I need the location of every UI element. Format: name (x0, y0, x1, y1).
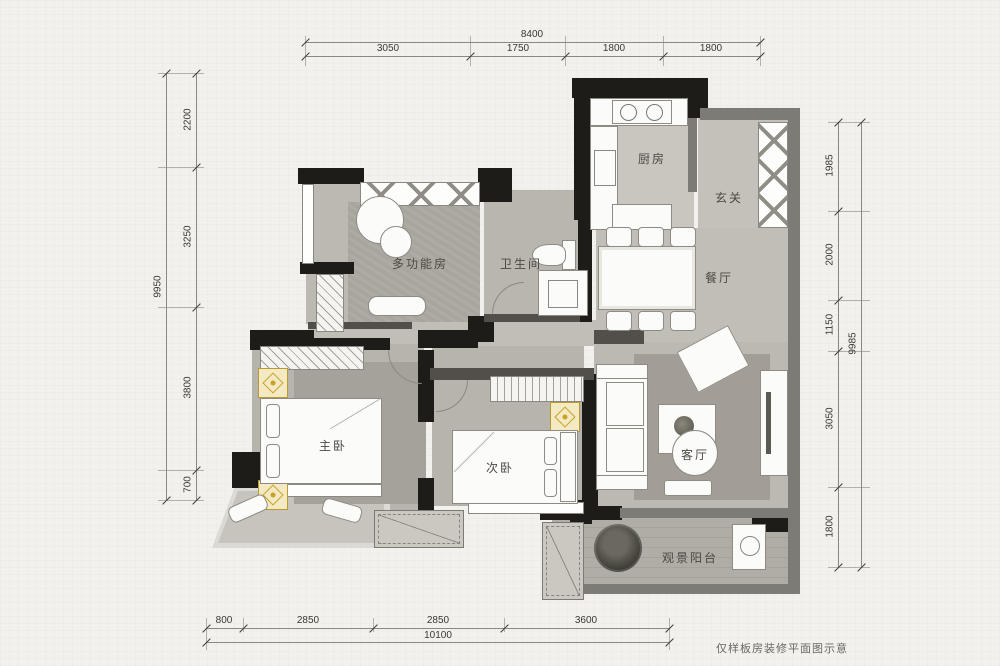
floor-plan-canvas: 厨房 玄关 卫生间 多功能房 餐厅 主卧 次卧 客厅 观景阳台 8400 305… (0, 0, 1000, 666)
extension-line (470, 36, 471, 66)
caption: 仅样板房装修平面图示意 (688, 640, 848, 656)
dim-label: 2850 (288, 615, 328, 626)
extension-line (663, 36, 664, 66)
ac-platform (542, 522, 584, 600)
dim-label: 9985 (848, 324, 859, 364)
dining-chair (670, 311, 696, 331)
wall (478, 168, 512, 202)
wall (620, 508, 790, 518)
extension-line (565, 36, 566, 66)
extension-line (828, 211, 870, 212)
burner-icon (646, 104, 663, 121)
dim-label: 1985 (825, 146, 836, 186)
wall (688, 118, 697, 192)
headboard (560, 432, 576, 502)
extension-line (828, 487, 870, 488)
ac-platform (374, 510, 464, 548)
bench (368, 296, 426, 316)
extension-line (828, 122, 870, 123)
dimension-line (206, 642, 669, 643)
dim-label: 3050 (368, 43, 408, 54)
dining-table (598, 246, 696, 310)
kitchen-label: 厨房 (638, 150, 666, 167)
tv-cabinet (760, 370, 788, 476)
dim-label: 800 (204, 615, 244, 626)
window (302, 184, 314, 264)
dim-label: 2200 (183, 100, 194, 140)
wall (418, 330, 478, 348)
balcony-label: 观景阳台 (662, 549, 718, 566)
second-bedroom-label: 次卧 (486, 459, 514, 476)
sofa-armrest (596, 364, 648, 379)
dim-label: 3800 (183, 368, 194, 408)
dim-label: 1800 (691, 43, 731, 54)
multifunction-label: 多功能房 (392, 255, 448, 272)
dim-label: 1150 (825, 305, 836, 345)
dimension-line (196, 73, 197, 500)
sofa-cushion (606, 428, 644, 472)
plant-icon (594, 524, 642, 572)
extension-line (828, 300, 870, 301)
dimension-line (861, 122, 862, 567)
dim-label: 700 (183, 465, 194, 505)
second-bedroom-closet (490, 376, 584, 402)
dimension-line (305, 56, 760, 57)
dimension-line (838, 122, 839, 567)
dim-label: 10100 (415, 630, 461, 641)
master-wardrobe (260, 346, 364, 370)
sofa-cushion (606, 382, 644, 426)
entry-label: 玄关 (715, 189, 743, 206)
sofa-armrest (596, 475, 648, 490)
pillow (266, 404, 280, 438)
dining-chair (638, 227, 664, 247)
nightstand-icon (550, 402, 580, 432)
dining-chair (638, 311, 664, 331)
wall (418, 478, 434, 510)
dining-chair (606, 311, 632, 331)
sink-icon (594, 150, 616, 186)
wall (552, 584, 800, 594)
dining-chair (670, 227, 696, 247)
extension-line (504, 618, 505, 632)
pillow (544, 469, 557, 497)
pillow (544, 437, 557, 465)
dining-label: 餐厅 (705, 269, 733, 286)
dimension-line (206, 628, 669, 629)
dimension-line (166, 73, 167, 500)
washer-door-icon (740, 536, 760, 556)
master-bedroom-label: 主卧 (319, 437, 347, 454)
living-label: 客厅 (681, 446, 709, 463)
dim-label: 1800 (594, 43, 634, 54)
dim-label: 1800 (825, 507, 836, 547)
extension-line (373, 618, 374, 632)
burner-icon (620, 104, 637, 121)
dim-label: 8400 (512, 29, 552, 40)
bench (664, 480, 712, 496)
dim-label: 3600 (566, 615, 606, 626)
wall (232, 452, 260, 488)
blanket-fold (330, 399, 380, 429)
bathroom-label: 卫生间 (500, 255, 542, 272)
tv-icon (766, 392, 771, 454)
dim-label: 3050 (825, 399, 836, 439)
basin-icon (548, 280, 578, 308)
wall (298, 168, 364, 184)
window (316, 274, 344, 332)
lounge-chair (380, 226, 412, 258)
extension-line (828, 567, 870, 568)
extension-line (669, 618, 670, 650)
entry-shoe-cabinet (758, 122, 788, 228)
dining-chair (606, 227, 632, 247)
nightstand-icon (258, 368, 288, 398)
dim-label: 3250 (183, 217, 194, 257)
dim-label: 9950 (153, 267, 164, 307)
dim-label: 2850 (418, 615, 458, 626)
dim-label: 1750 (498, 43, 538, 54)
wall (594, 330, 644, 344)
pillow (266, 444, 280, 478)
dim-label: 2000 (825, 235, 836, 275)
wall (700, 108, 800, 120)
